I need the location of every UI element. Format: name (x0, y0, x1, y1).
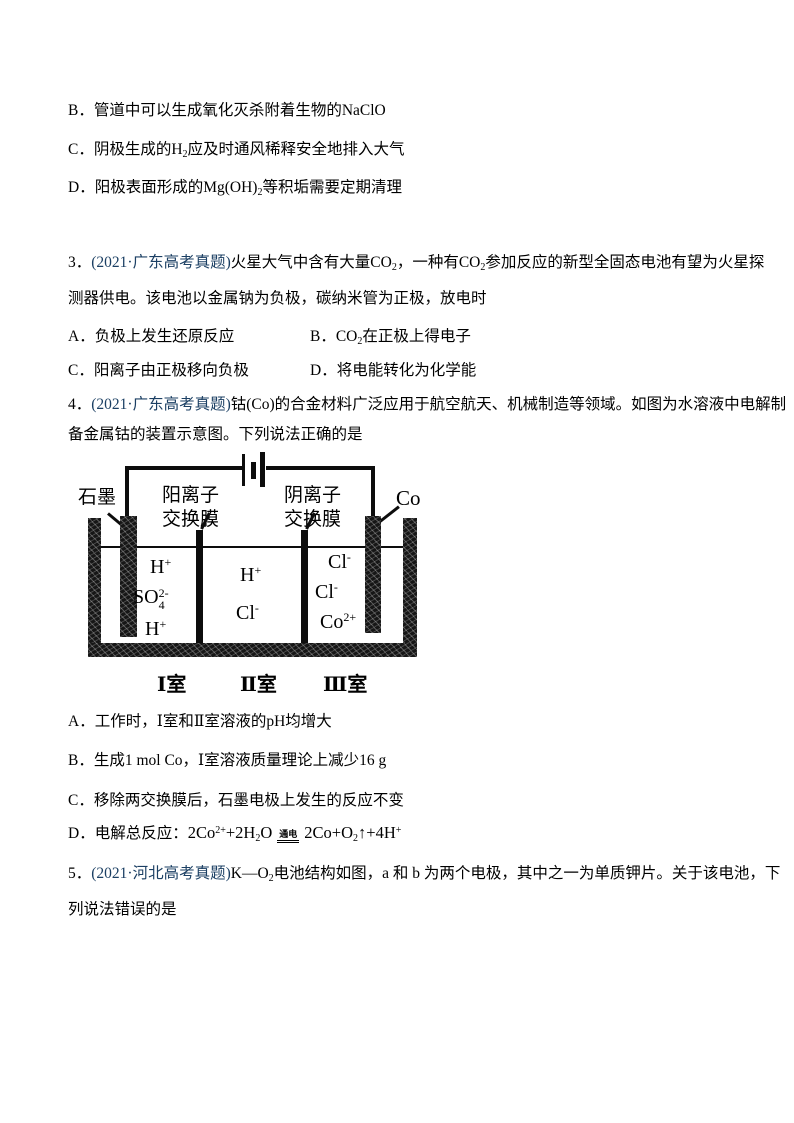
exam-citation: (2021·广东高考真题) (91, 396, 231, 413)
battery-icon (240, 450, 270, 490)
question5-stem-line2: 列说法错误的是 (68, 900, 177, 920)
ion-h-plus: H+ (150, 556, 171, 578)
wire-top-left (125, 466, 242, 470)
room-1-label: Ⅰ室 (157, 668, 186, 697)
anion-membrane-label: 阴离子 交换膜 (284, 484, 341, 532)
room-3-label: Ⅲ室 (323, 668, 367, 697)
question3-option-a: A．负极上发生还原反应 (68, 327, 234, 347)
question-number: 3． (68, 254, 91, 271)
cell-right-wall (403, 518, 417, 657)
question3-option-d: D．将电能转化为化学能 (310, 361, 476, 381)
graphite-electrode-label: 石墨 (78, 486, 116, 510)
ion-h-plus: H+ (240, 564, 261, 586)
question3-stem-line1: 3．(2021·广东高考真题)火星大气中含有大量CO2，一种有CO2参加反应的新… (68, 253, 764, 273)
ion-h-plus: H+ (145, 618, 166, 640)
question4-option-b: B．生成1 mol Co，Ⅰ室溶液质量理论上减少16 g (68, 751, 386, 771)
cation-exchange-membrane (196, 530, 203, 643)
cobalt-electrode (365, 516, 381, 633)
electrolysis-cell-diagram: 石墨 阳离子 交换膜 阴离子 交换膜 Co H+ SO2-4 H+ H+ Cl- (78, 450, 448, 702)
document-page: B．管道中可以生成氧化灭杀附着生物的NaClO C．阴极生成的H2应及时通风稀释… (0, 0, 794, 1123)
question-number: 5． (68, 865, 91, 882)
question4-stem-line1: 4．(2021·广东高考真题)钴(Co)的合金材料广泛应用于航空航天、机械制造等… (68, 395, 786, 415)
anion-exchange-membrane (301, 530, 308, 643)
question3-option-b: B．CO2在正极上得电子 (310, 327, 471, 347)
cobalt-electrode-label: Co (396, 486, 421, 510)
cobalt-leader-line (379, 506, 400, 523)
question2-option-d: D．阳极表面形成的Mg(OH)2等积垢需要定期清理 (68, 178, 402, 198)
question5-stem-line1: 5．(2021·河北高考真题)K—O2电池结构如图，a 和 b 为两个电极，其中… (68, 864, 780, 884)
ion-chloride: Cl- (328, 551, 351, 573)
question-number: 4． (68, 396, 91, 413)
question4-stem-line2: 备金属钴的装置示意图。下列说法正确的是 (68, 425, 363, 445)
question2-option-b: B．管道中可以生成氧化灭杀附着生物的NaClO (68, 101, 386, 121)
wire-right-vertical (371, 466, 375, 520)
exam-citation: (2021·广东高考真题) (91, 254, 231, 271)
graphite-electrode (120, 516, 137, 637)
question4-option-c: C．移除两交换膜后，石墨电极上发生的反应不变 (68, 791, 404, 811)
ion-sulfate: SO2-4 (133, 586, 169, 611)
ion-chloride: Cl- (315, 581, 338, 603)
ion-cobalt: Co2+ (320, 611, 356, 633)
wire-left-vertical (125, 466, 129, 520)
liquid-surface-line (101, 546, 403, 548)
wire-top-right (266, 466, 375, 470)
exam-citation: (2021·河北高考真题) (91, 865, 231, 882)
cell-left-wall (88, 518, 101, 657)
option-text: B．管道中可以生成氧化灭杀附着生物的NaClO (68, 102, 386, 119)
ion-chloride: Cl- (236, 602, 259, 624)
question4-option-d: D．电解总反应：2Co2++2H2O通电2Co+O2↑+4H+ (68, 823, 401, 844)
question3-option-c: C．阳离子由正极移向负极 (68, 361, 249, 381)
room-2-label: Ⅱ室 (240, 668, 277, 697)
question3-stem-line2: 测器供电。该电池以金属钠为负极，碳纳米管为正极，放电时 (68, 289, 487, 309)
question2-option-c: C．阴极生成的H2应及时通风稀释安全地排入大气 (68, 140, 405, 160)
cation-membrane-label: 阳离子 交换膜 (162, 484, 219, 532)
reaction-condition: 通电 (277, 829, 299, 843)
electrolysis-equation: 2Co2++2H2O通电2Co+O2↑+4H+ (188, 823, 402, 842)
question4-option-a: A．工作时，Ⅰ室和Ⅱ室溶液的pH均增大 (68, 712, 332, 732)
cell-bottom-wall (88, 643, 417, 657)
